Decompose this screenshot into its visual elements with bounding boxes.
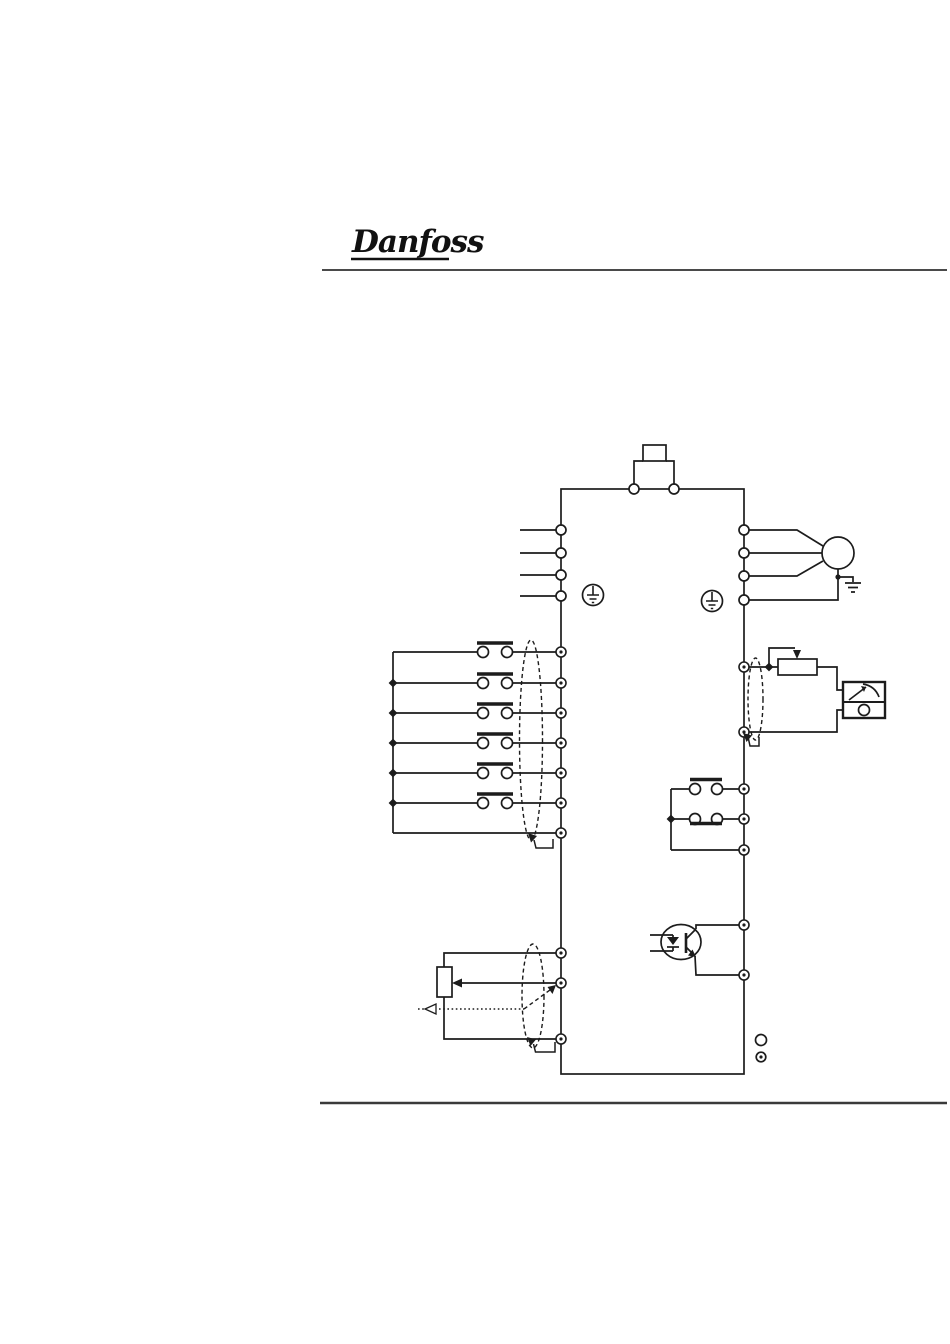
potentiometer-icon [778, 659, 817, 675]
terminal-legend [756, 1035, 767, 1062]
relay-output-circuit [667, 780, 749, 856]
drive-enclosure-outline [561, 489, 744, 1074]
brake-resistor-icon [643, 445, 666, 461]
digital-input-switch-icon [477, 794, 513, 809]
page-header: Danfoss [322, 224, 947, 270]
digital-input-terminal [556, 708, 566, 718]
digital-output-terminal [739, 920, 749, 930]
relay-terminal [739, 845, 749, 855]
digital-input-switch-icon [477, 643, 513, 658]
digital-input-switch-icon [477, 674, 513, 689]
digital-input-terminal [556, 647, 566, 657]
motor-connection [739, 525, 861, 605]
digital-input-switch-icon [477, 764, 513, 779]
protective-earth-icon [583, 585, 604, 606]
digital-input-terminal [556, 738, 566, 748]
analog-input-circuit [418, 944, 566, 1052]
brake-terminal [629, 484, 639, 494]
shield-clamp-icon [743, 733, 759, 746]
analog-output-circuit [739, 648, 885, 746]
dashed-arrowhead [548, 985, 557, 994]
optocoupler-output-circuit [650, 920, 749, 980]
relay-terminal [739, 814, 749, 824]
junction-diamond [389, 679, 398, 688]
analog-input-common-terminal [556, 1034, 566, 1044]
junction-diamond [667, 815, 676, 824]
mains-terminal [556, 570, 566, 580]
open-arrowhead [425, 1004, 436, 1014]
mains-input [520, 525, 566, 601]
digital-input-circuit [389, 640, 566, 848]
motor-earth-icon [845, 583, 861, 592]
digital-input-switch-icon [477, 734, 513, 749]
junction-diamond [389, 769, 398, 778]
shield-clamp-icon [528, 833, 553, 848]
analog-input-terminal [556, 978, 566, 988]
relay-nc-contact-icon [690, 814, 723, 825]
motor-terminal [739, 571, 749, 581]
motor-icon [822, 537, 854, 569]
mains-terminal [556, 548, 566, 558]
brake-terminal [669, 484, 679, 494]
digital-input-common-terminal [556, 828, 566, 838]
brake-resistor [629, 445, 679, 494]
motor-terminal [739, 548, 749, 558]
connection-diagram [389, 445, 885, 1074]
motor-terminal [739, 525, 749, 535]
mains-terminal [556, 525, 566, 535]
wiper-arrow [452, 979, 462, 988]
legend-power-terminal-symbol [756, 1035, 767, 1046]
digital-input-terminal [556, 798, 566, 808]
motor-earth-terminal [739, 595, 749, 605]
shielded-cable-oval [748, 658, 763, 740]
relay-terminal [739, 784, 749, 794]
mains-terminal [556, 591, 566, 601]
analog-output-terminal [739, 662, 749, 672]
digital-input-switch-icon [477, 704, 513, 719]
photodiode-icon [667, 937, 679, 945]
shielded-cable-oval [520, 640, 543, 840]
protective-earth-icon [702, 591, 723, 612]
digital-input-terminal [556, 768, 566, 778]
digital-input-terminal [556, 678, 566, 688]
danfoss-logo: Danfoss [351, 224, 484, 260]
reference-potentiometer-icon [437, 967, 452, 997]
analog-input-terminal [556, 948, 566, 958]
junction-diamond [389, 799, 398, 808]
junction-diamond [389, 709, 398, 718]
wiper-arrow [793, 650, 801, 659]
junction-diamond [389, 739, 398, 748]
digital-output-terminal [739, 970, 749, 980]
relay-no-contact-icon [690, 780, 723, 795]
scanned-manual-page: Danfoss [0, 0, 950, 1344]
analog-meter-icon [843, 682, 885, 718]
